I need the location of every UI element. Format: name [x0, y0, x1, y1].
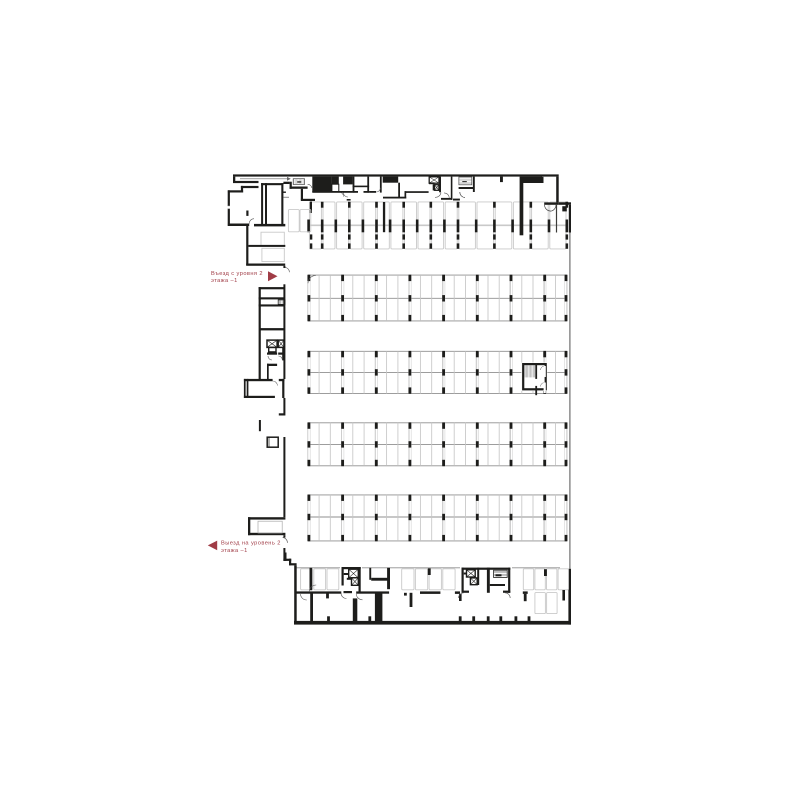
svg-text:этажа –1: этажа –1 — [211, 278, 238, 284]
svg-text:Въезд с уровня 2: Въезд с уровня 2 — [211, 271, 263, 277]
svg-text:этажа –1: этажа –1 — [221, 548, 248, 554]
svg-text:Выезд на уровень 2: Выезд на уровень 2 — [221, 541, 281, 547]
